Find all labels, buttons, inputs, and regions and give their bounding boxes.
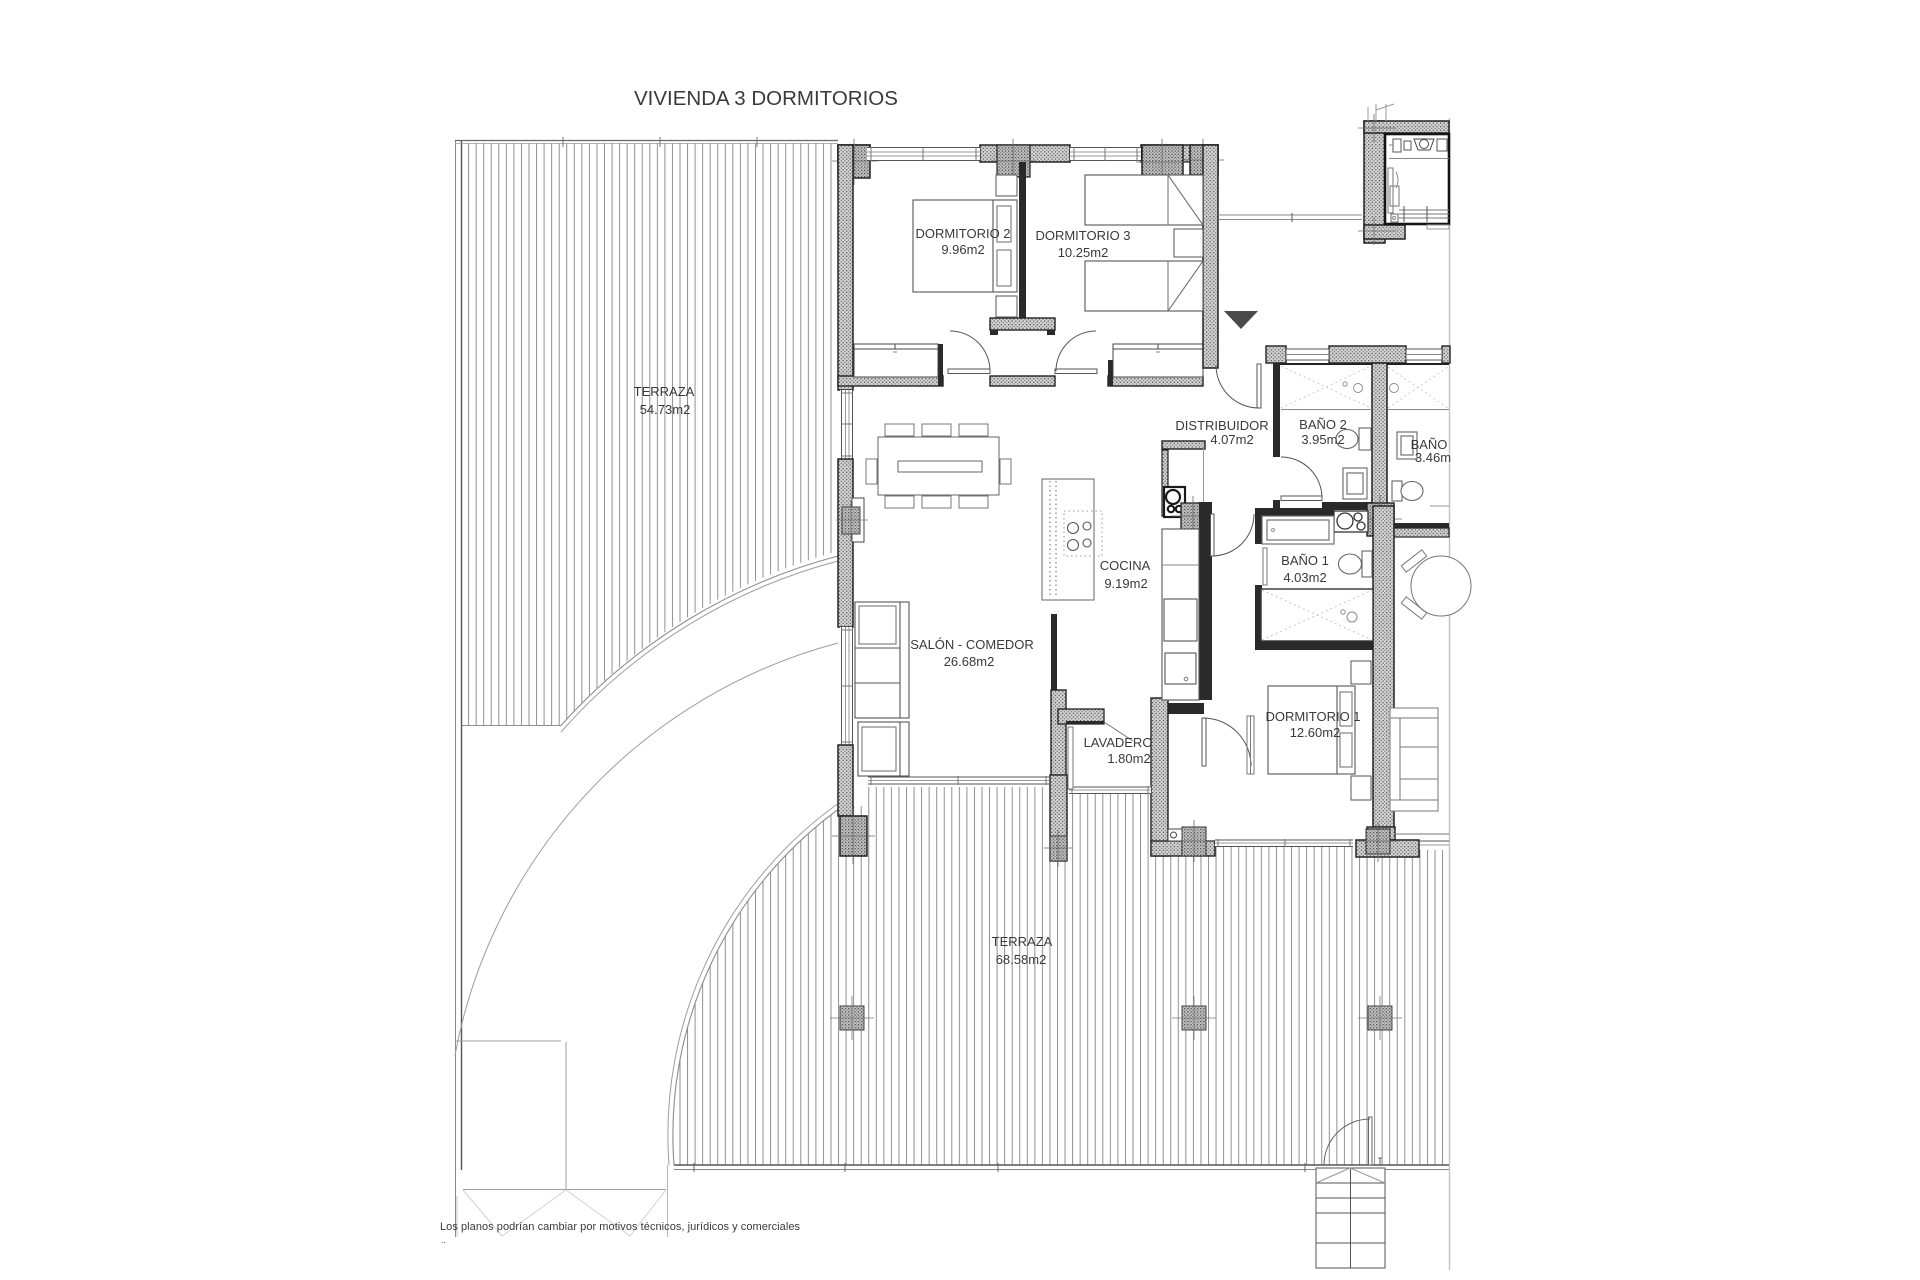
svg-text:3.46m: 3.46m — [1415, 450, 1451, 465]
svg-text:COCINA: COCINA — [1100, 558, 1151, 573]
svg-text:DISTRIBUIDOR: DISTRIBUIDOR — [1175, 418, 1268, 433]
svg-text:4.03m2: 4.03m2 — [1283, 570, 1326, 585]
svg-text:12.60m2: 12.60m2 — [1290, 725, 1341, 740]
svg-text:10.25m2: 10.25m2 — [1058, 245, 1109, 260]
svg-text:DORMITORIO 2: DORMITORIO 2 — [915, 226, 1010, 241]
svg-text:26.68m2: 26.68m2 — [944, 654, 995, 669]
svg-text:1.80m2: 1.80m2 — [1107, 751, 1150, 766]
svg-text:VIVIENDA 3 DORMITORIOS: VIVIENDA 3 DORMITORIOS — [634, 87, 898, 110]
svg-text:BAÑO 2: BAÑO 2 — [1299, 417, 1347, 432]
svg-text:DORMITORIO 3: DORMITORIO 3 — [1035, 228, 1130, 243]
svg-text:BAÑO 1: BAÑO 1 — [1281, 553, 1329, 568]
svg-text:9.19m2: 9.19m2 — [1104, 576, 1147, 591]
svg-text:4.07m2: 4.07m2 — [1210, 432, 1253, 447]
svg-text:3.95m2: 3.95m2 — [1301, 432, 1344, 447]
svg-text:54.73m2: 54.73m2 — [640, 402, 691, 417]
svg-text:Los planos podrían cambiar por: Los planos podrían cambiar por motivos t… — [440, 1221, 800, 1233]
svg-text:LAVADERO: LAVADERO — [1084, 735, 1153, 750]
svg-text:TERRAZA: TERRAZA — [634, 384, 695, 399]
svg-text:9.96m2: 9.96m2 — [941, 242, 984, 257]
svg-text:68.58m2: 68.58m2 — [996, 952, 1047, 967]
svg-text:TERRAZA: TERRAZA — [992, 934, 1053, 949]
svg-text:SALÓN - COMEDOR: SALÓN - COMEDOR — [910, 637, 1034, 652]
svg-text:DORMITORIO 1: DORMITORIO 1 — [1265, 709, 1360, 724]
svg-text:..: .. — [441, 1235, 446, 1245]
